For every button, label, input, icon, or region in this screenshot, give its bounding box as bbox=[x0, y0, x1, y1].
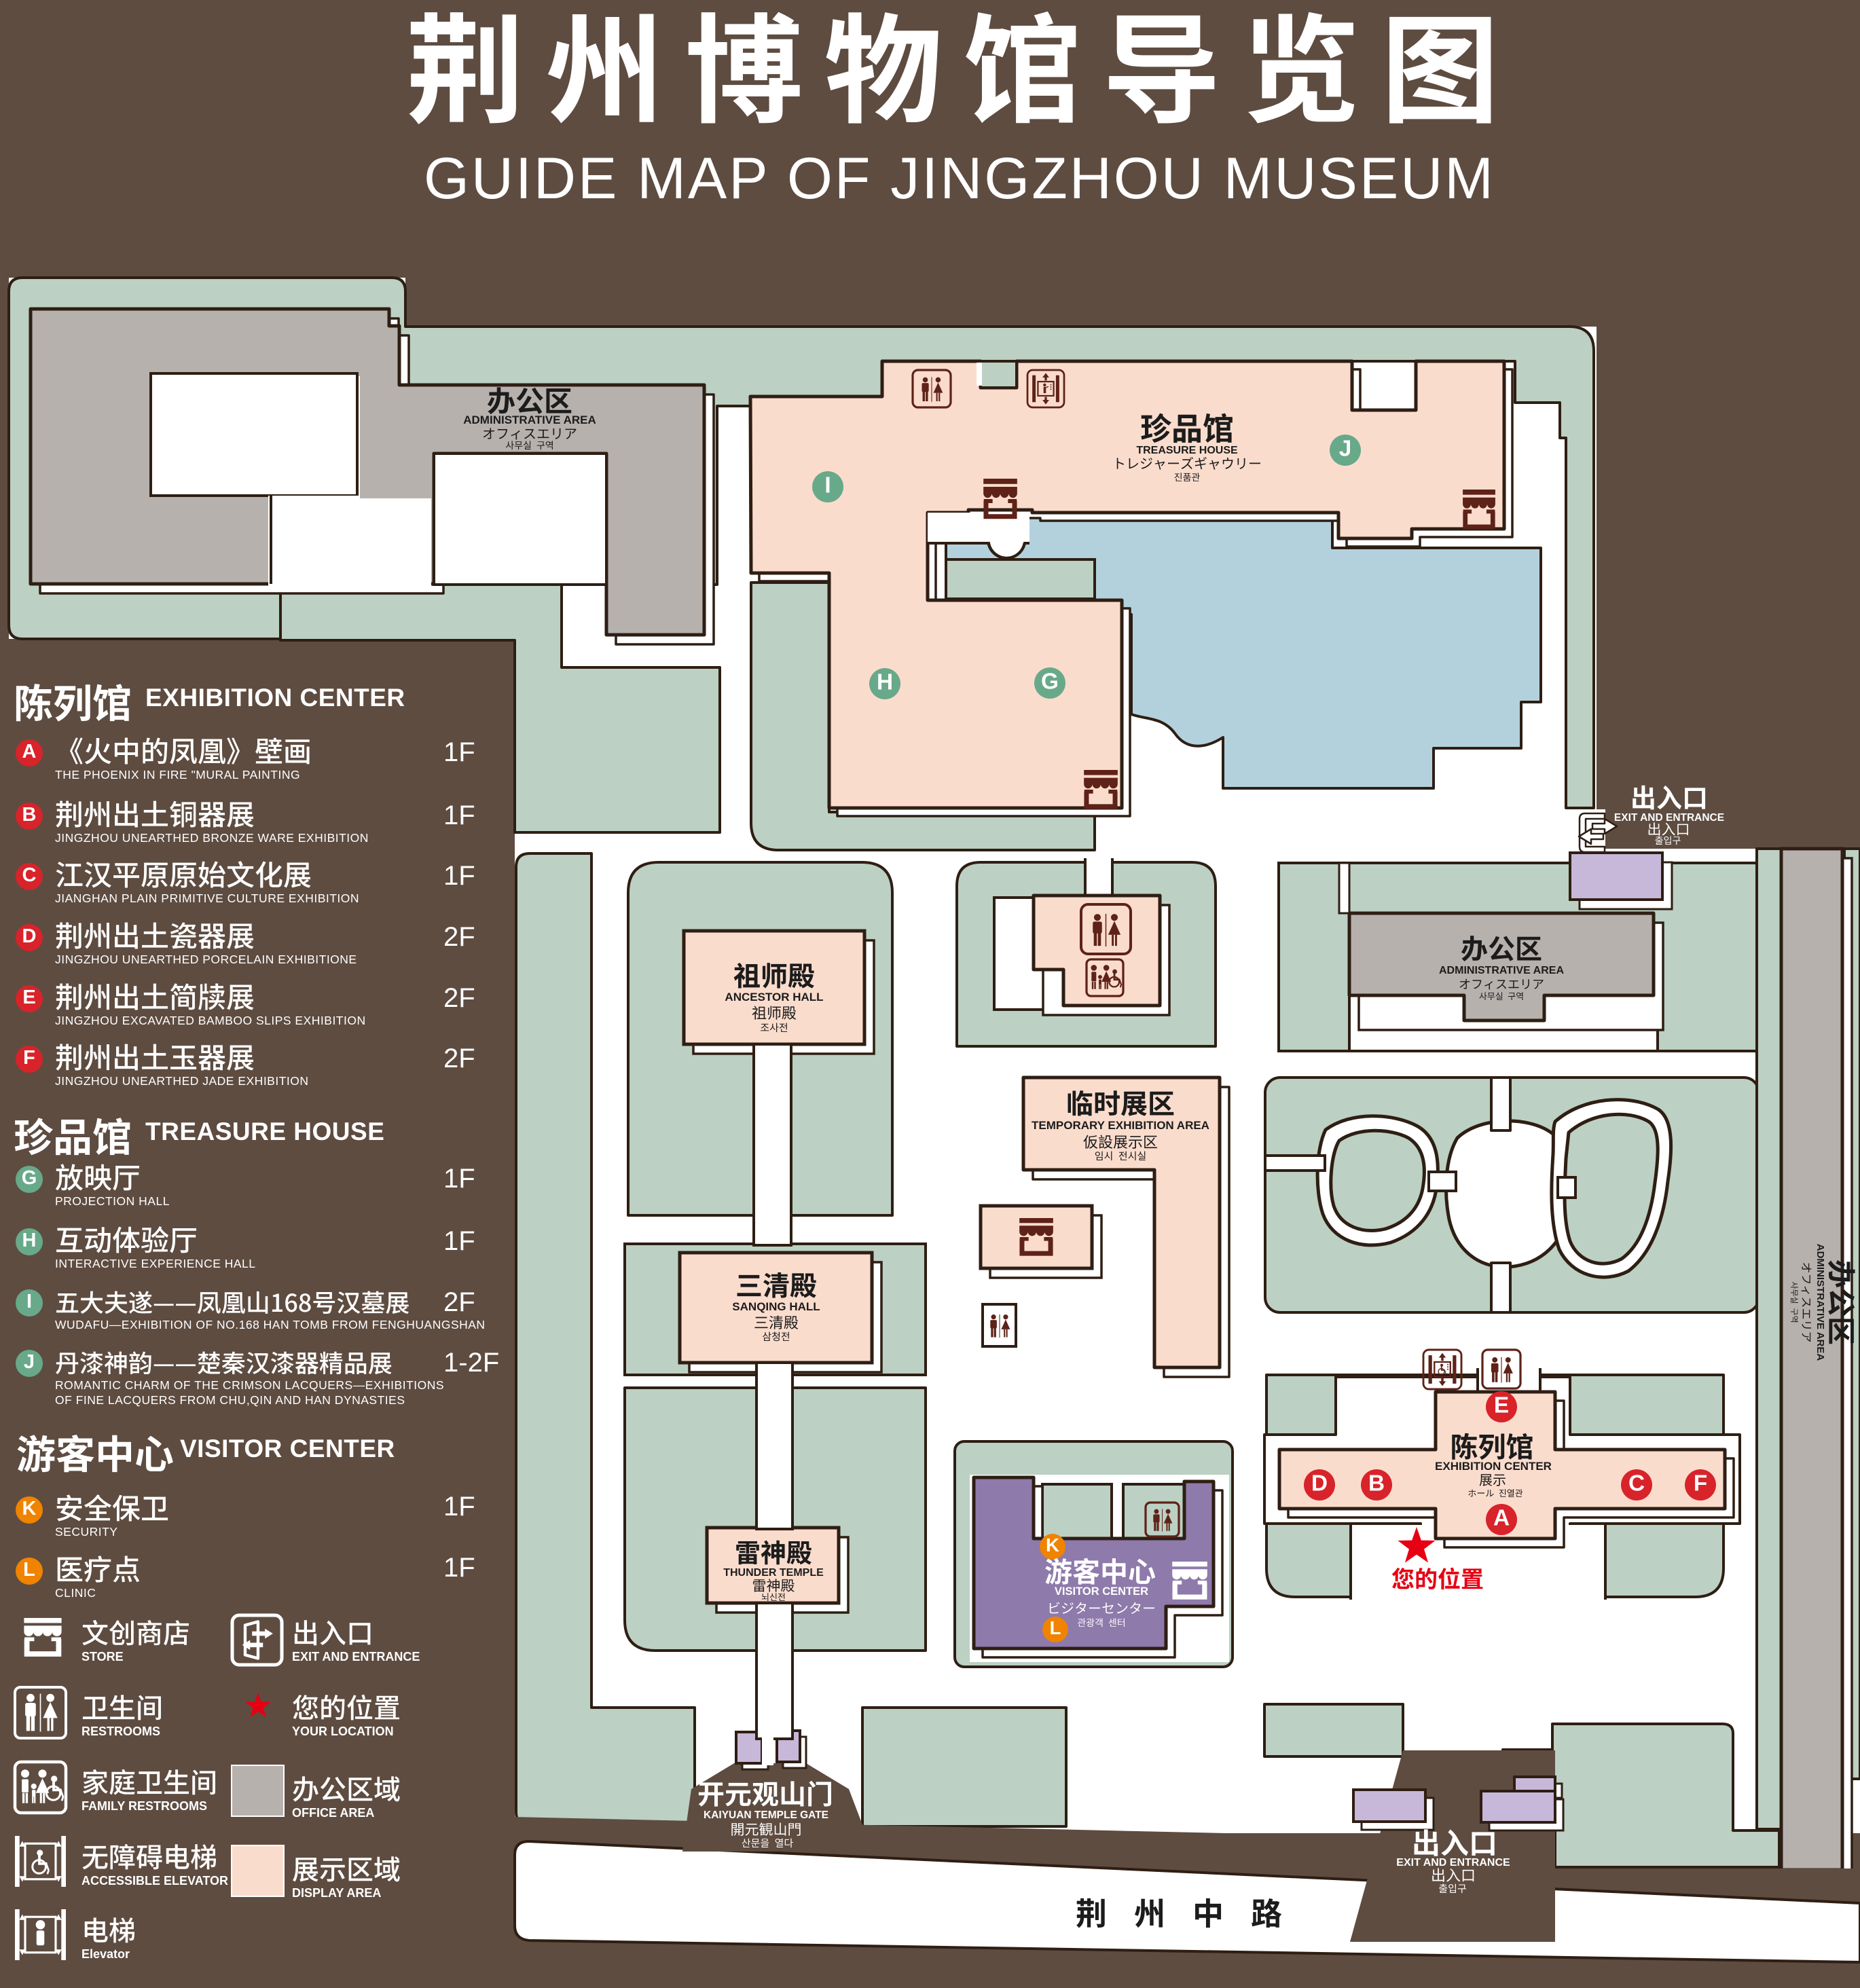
svg-text:JIANGHAN PLAIN PRIMITIVE CULTU: JIANGHAN PLAIN PRIMITIVE CULTURE EXHIBIT… bbox=[55, 891, 359, 905]
svg-text:ADMINISTRATIVE AREA: ADMINISTRATIVE AREA bbox=[1439, 965, 1564, 976]
svg-text:B: B bbox=[22, 804, 37, 826]
svg-text:F: F bbox=[1694, 1471, 1707, 1496]
svg-text:JINGZHOU EXCAVATED BAMBOO SLIP: JINGZHOU EXCAVATED BAMBOO SLIPS EXHIBITI… bbox=[55, 1014, 366, 1027]
svg-text:JINGZHOU UNEARTHED BRONZE WARE: JINGZHOU UNEARTHED BRONZE WARE EXHIBITIO… bbox=[55, 831, 369, 845]
svg-text:PROJECTION HALL: PROJECTION HALL bbox=[55, 1194, 170, 1208]
svg-text:THUNDER TEMPLE: THUNDER TEMPLE bbox=[723, 1567, 824, 1579]
svg-text:EXIT AND ENTRANCE: EXIT AND ENTRANCE bbox=[292, 1650, 420, 1663]
svg-text:A: A bbox=[22, 741, 37, 762]
svg-text:J: J bbox=[24, 1351, 35, 1373]
svg-text:2F: 2F bbox=[443, 1287, 475, 1317]
svg-text:1F: 1F bbox=[443, 737, 475, 767]
svg-text:C: C bbox=[22, 864, 37, 886]
svg-text:TEMPORARY EXHIBITION AREA: TEMPORARY EXHIBITION AREA bbox=[1032, 1119, 1209, 1132]
svg-text:C: C bbox=[1628, 1471, 1645, 1496]
svg-text:SECURITY: SECURITY bbox=[55, 1525, 117, 1539]
svg-text:E: E bbox=[22, 987, 35, 1008]
svg-text:SANQING HALL: SANQING HALL bbox=[732, 1300, 820, 1313]
svg-text:ROMANTIC CHARM OF THE CRIMSON: ROMANTIC CHARM OF THE CRIMSON LACQUERS—E… bbox=[55, 1378, 444, 1392]
svg-text:2F: 2F bbox=[443, 983, 475, 1013]
svg-text:EXHIBITION CENTER: EXHIBITION CENTER bbox=[1435, 1460, 1552, 1473]
svg-text:1F: 1F bbox=[443, 800, 475, 830]
svg-text:Elevator: Elevator bbox=[81, 1947, 130, 1961]
svg-text:B: B bbox=[1368, 1471, 1385, 1496]
svg-text:L: L bbox=[23, 1559, 35, 1581]
svg-text:1F: 1F bbox=[443, 1226, 475, 1256]
svg-text:VISITOR CENTER: VISITOR CENTER bbox=[1055, 1585, 1148, 1598]
svg-text:J: J bbox=[1339, 436, 1352, 461]
svg-text:STORE: STORE bbox=[81, 1650, 124, 1663]
svg-text:TREASURE HOUSE: TREASURE HOUSE bbox=[145, 1118, 384, 1145]
svg-text:FAMILY RESTROOMS: FAMILY RESTROOMS bbox=[81, 1799, 207, 1813]
svg-text:JINGZHOU UNEARTHED JADE EXHIBI: JINGZHOU UNEARTHED JADE EXHIBITION bbox=[55, 1074, 309, 1088]
svg-text:1F: 1F bbox=[443, 1553, 475, 1583]
svg-text:G: G bbox=[1041, 669, 1059, 694]
svg-text:EXHIBITION CENTER: EXHIBITION CENTER bbox=[145, 684, 405, 712]
svg-text:VISITOR CENTER: VISITOR CENTER bbox=[180, 1435, 395, 1462]
svg-text:D: D bbox=[1311, 1471, 1328, 1496]
svg-text:ANCESTOR HALL: ANCESTOR HALL bbox=[725, 991, 823, 1004]
svg-text:1F: 1F bbox=[443, 861, 475, 891]
svg-text:1F: 1F bbox=[443, 1492, 475, 1522]
svg-text:K: K bbox=[1046, 1534, 1059, 1556]
svg-text:I: I bbox=[26, 1291, 32, 1312]
svg-text:I: I bbox=[824, 473, 831, 498]
svg-text:F: F bbox=[23, 1047, 35, 1069]
svg-text:KAIYUAN TEMPLE GATE: KAIYUAN TEMPLE GATE bbox=[704, 1809, 828, 1821]
svg-text:H: H bbox=[22, 1230, 37, 1251]
svg-text:D: D bbox=[22, 925, 37, 947]
svg-text:THE PHOENIX IN FIRE "MURAL PAI: THE PHOENIX IN FIRE "MURAL PAINTING bbox=[55, 768, 300, 781]
svg-text:A: A bbox=[1493, 1505, 1510, 1530]
svg-text:L: L bbox=[1050, 1617, 1061, 1638]
svg-text:INTERACTIVE EXPERIENCE HALL: INTERACTIVE EXPERIENCE HALL bbox=[55, 1257, 256, 1270]
svg-text:ACCESSIBLE ELEVATOR: ACCESSIBLE ELEVATOR bbox=[81, 1874, 228, 1888]
svg-text:1F: 1F bbox=[443, 1164, 475, 1194]
svg-text:CLINIC: CLINIC bbox=[55, 1586, 96, 1600]
svg-text:2F: 2F bbox=[443, 1044, 475, 1073]
svg-text:OF FINE LACQUERS FROM CHU,QIN: OF FINE LACQUERS FROM CHU,QIN AND HAN DY… bbox=[55, 1393, 405, 1407]
svg-text:YOUR LOCATION: YOUR LOCATION bbox=[292, 1725, 394, 1738]
svg-text:H: H bbox=[877, 669, 893, 695]
svg-text:2F: 2F bbox=[443, 922, 475, 952]
svg-text:1-2F: 1-2F bbox=[443, 1348, 499, 1378]
svg-text:EXIT AND ENTRANCE: EXIT AND ENTRANCE bbox=[1614, 812, 1724, 824]
svg-text:ADMINISTRATIVE AREA: ADMINISTRATIVE AREA bbox=[463, 413, 596, 426]
svg-text:K: K bbox=[22, 1498, 37, 1520]
svg-text:GUIDE MAP OF JINGZHOU MUSEUM: GUIDE MAP OF JINGZHOU MUSEUM bbox=[424, 146, 1495, 211]
svg-text:ADMINISTRATIVE AREA: ADMINISTRATIVE AREA bbox=[1815, 1244, 1826, 1361]
svg-text:G: G bbox=[22, 1167, 37, 1189]
svg-text:TREASURE HOUSE: TREASURE HOUSE bbox=[1136, 445, 1238, 456]
svg-text:WUDAFU—EXHIBITION OF NO.168 HA: WUDAFU—EXHIBITION OF NO.168 HAN TOMB FRO… bbox=[55, 1318, 486, 1331]
svg-text:JINGZHOU UNEARTHED PORCELAIN E: JINGZHOU UNEARTHED PORCELAIN EXHIBITIONE bbox=[55, 953, 357, 966]
svg-text:E: E bbox=[1494, 1393, 1509, 1418]
svg-text:RESTROOMS: RESTROOMS bbox=[81, 1725, 160, 1738]
svg-text:OFFICE AREA: OFFICE AREA bbox=[292, 1806, 374, 1820]
svg-text:DISPLAY AREA: DISPLAY AREA bbox=[292, 1886, 381, 1900]
svg-text:EXIT AND ENTRANCE: EXIT AND ENTRANCE bbox=[1396, 1857, 1510, 1869]
